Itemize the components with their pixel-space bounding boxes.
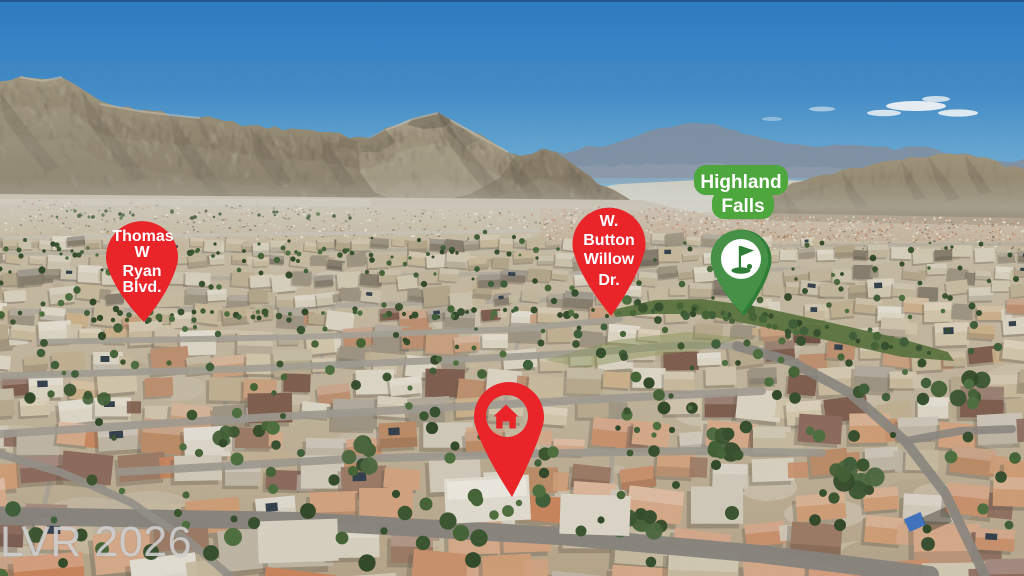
svg-text:Button: Button	[583, 232, 635, 249]
svg-text:W: W	[134, 244, 150, 261]
svg-text:Willow: Willow	[584, 251, 635, 268]
svg-text:Blvd.: Blvd.	[122, 279, 161, 296]
svg-text:Ryan: Ryan	[122, 263, 161, 280]
svg-text:Dr.: Dr.	[598, 272, 619, 289]
svg-text:Falls: Falls	[721, 196, 764, 217]
svg-text:Highland: Highland	[700, 172, 781, 193]
svg-text:W.: W.	[600, 213, 619, 230]
svg-text:Thomas: Thomas	[112, 228, 173, 245]
